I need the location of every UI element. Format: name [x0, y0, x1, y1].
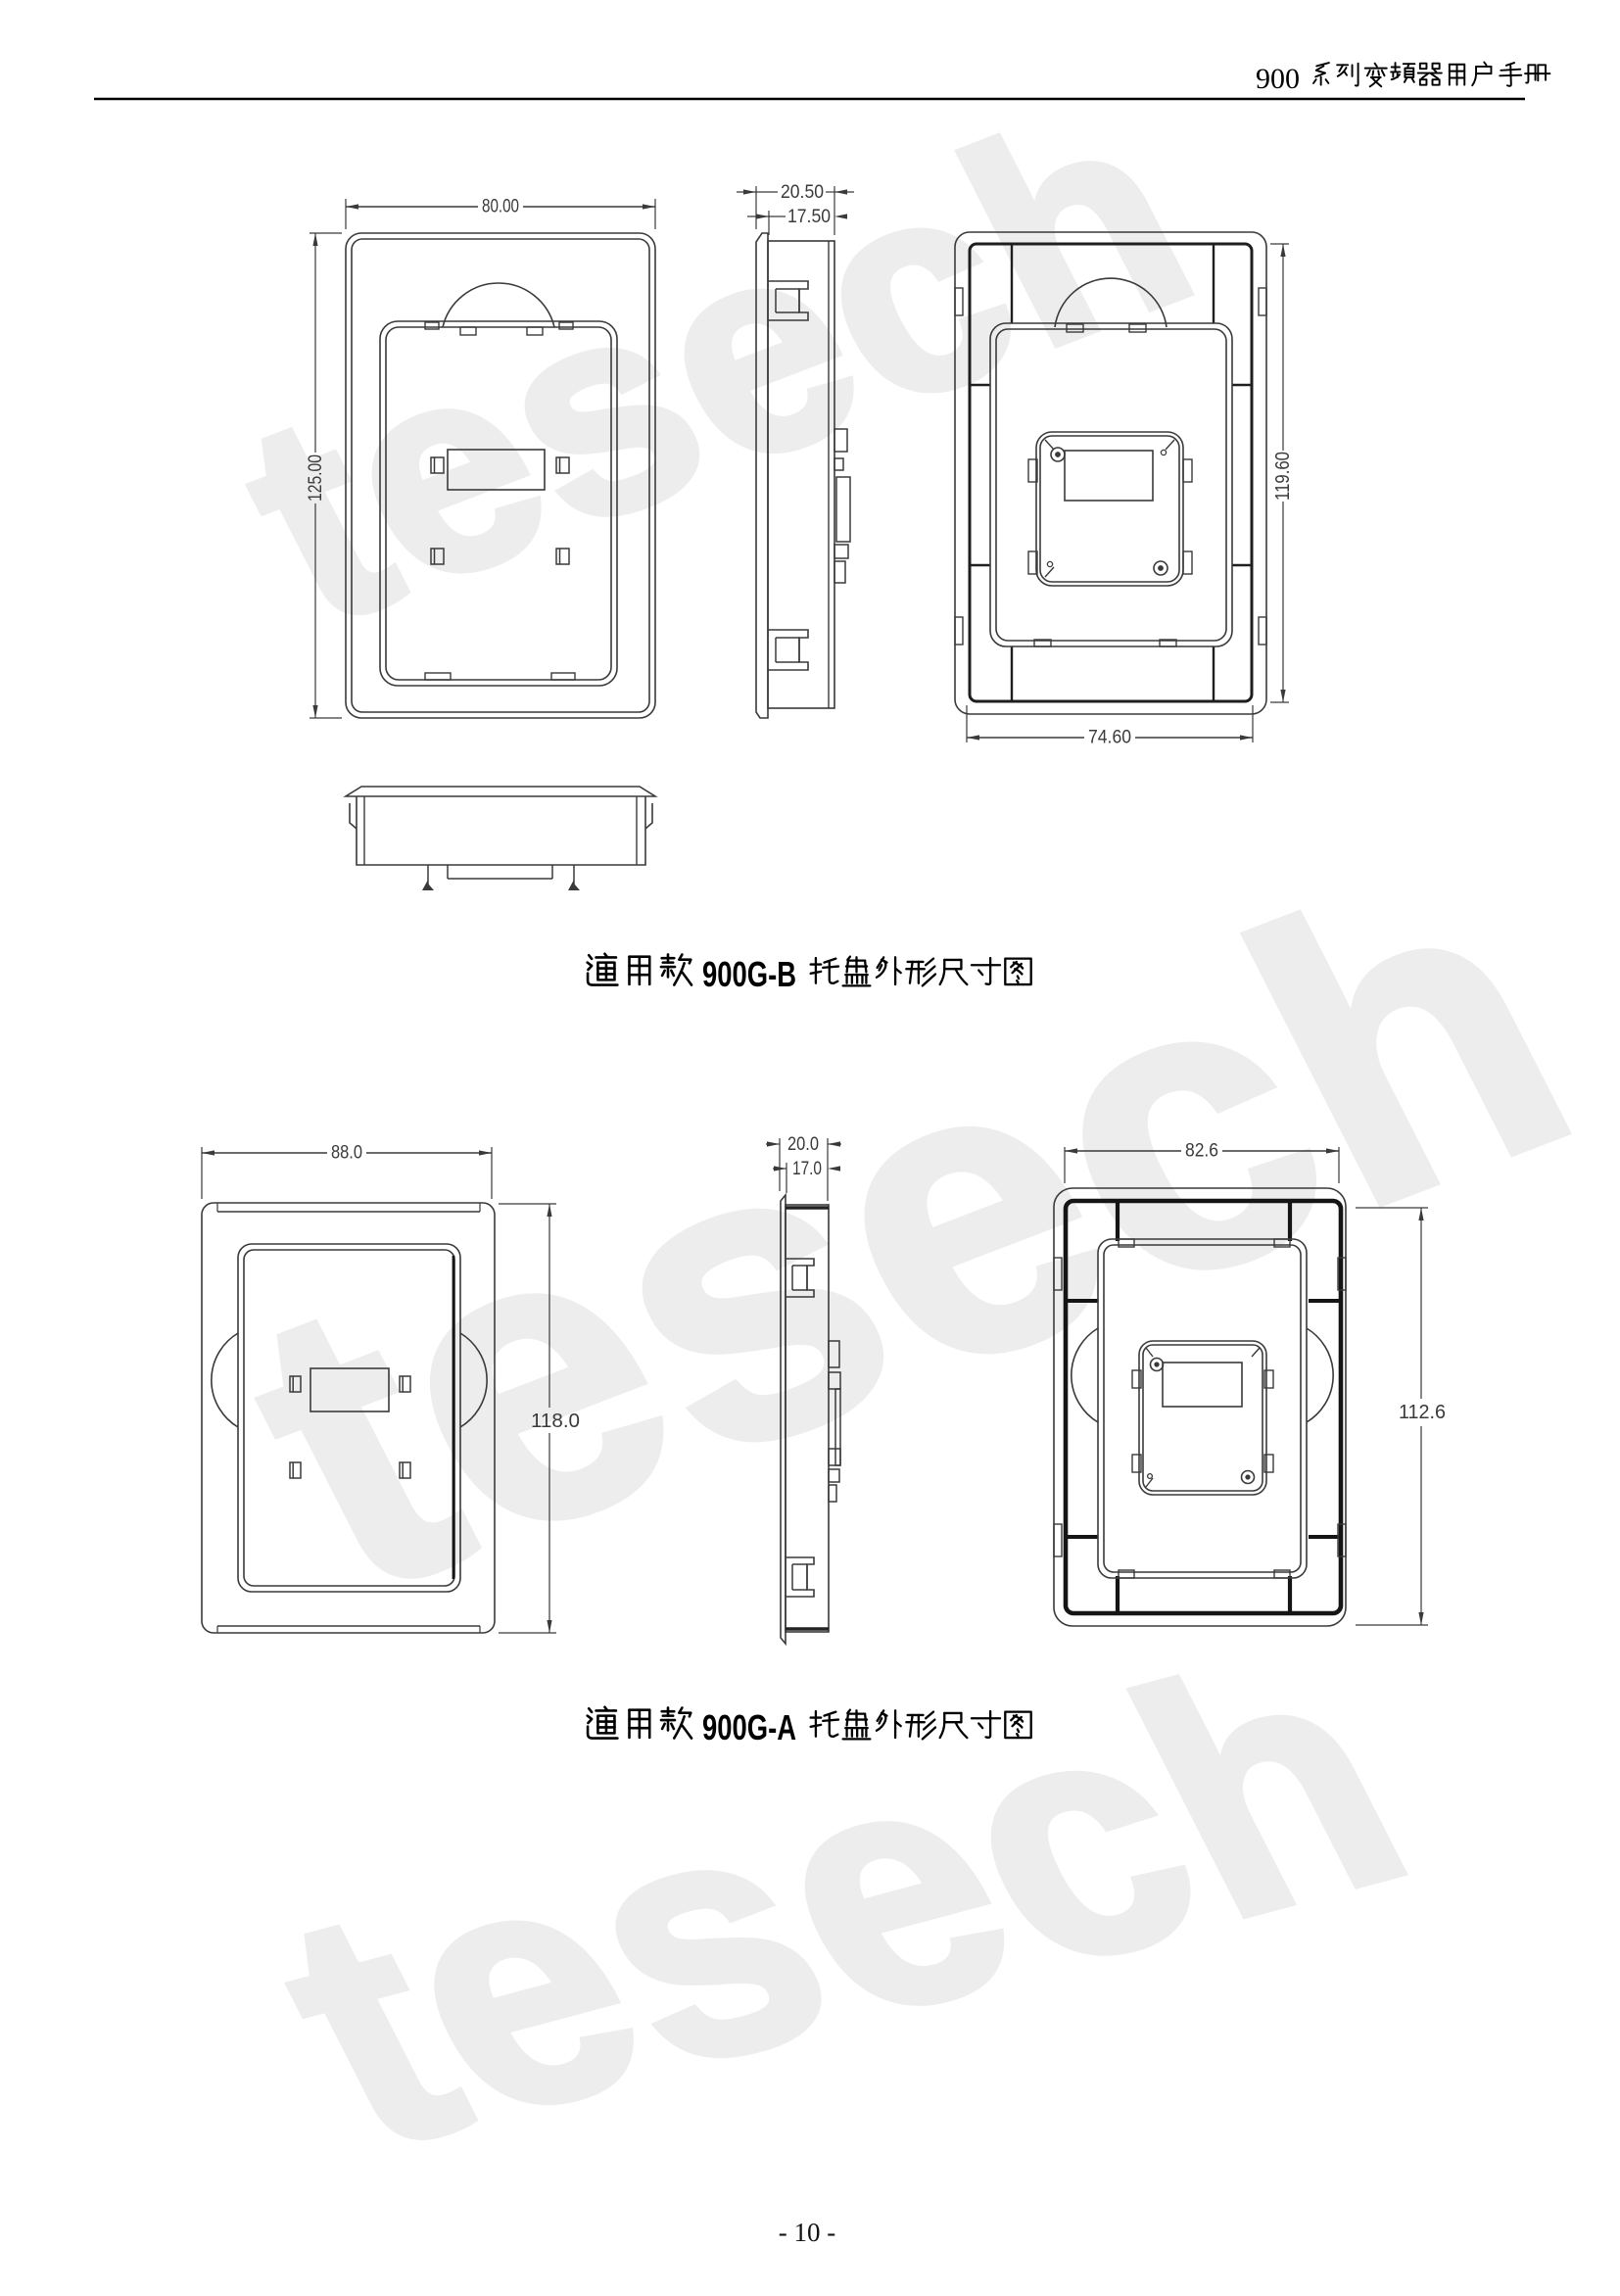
- svg-text:80.00: 80.00: [482, 197, 519, 217]
- svg-text:20.50: 20.50: [781, 182, 824, 203]
- svg-text:20.0: 20.0: [787, 1134, 819, 1155]
- svg-text:900: 900: [1256, 63, 1300, 95]
- svg-text:17.50: 17.50: [787, 207, 831, 227]
- svg-text:74.60: 74.60: [1088, 728, 1131, 748]
- svg-text:17.0: 17.0: [792, 1159, 822, 1179]
- svg-text:88.0: 88.0: [331, 1143, 362, 1164]
- svg-text:118.0: 118.0: [531, 1411, 580, 1432]
- svg-text:112.6: 112.6: [1399, 1402, 1446, 1423]
- svg-text:900G-A: 900G-A: [702, 1707, 796, 1747]
- svg-text:119.60: 119.60: [1272, 452, 1294, 501]
- svg-text:900G-B: 900G-B: [702, 954, 796, 994]
- svg-text:82.6: 82.6: [1185, 1141, 1218, 1162]
- svg-text:125.00: 125.00: [306, 454, 326, 502]
- svg-text:- 10 -: - 10 -: [779, 2218, 835, 2247]
